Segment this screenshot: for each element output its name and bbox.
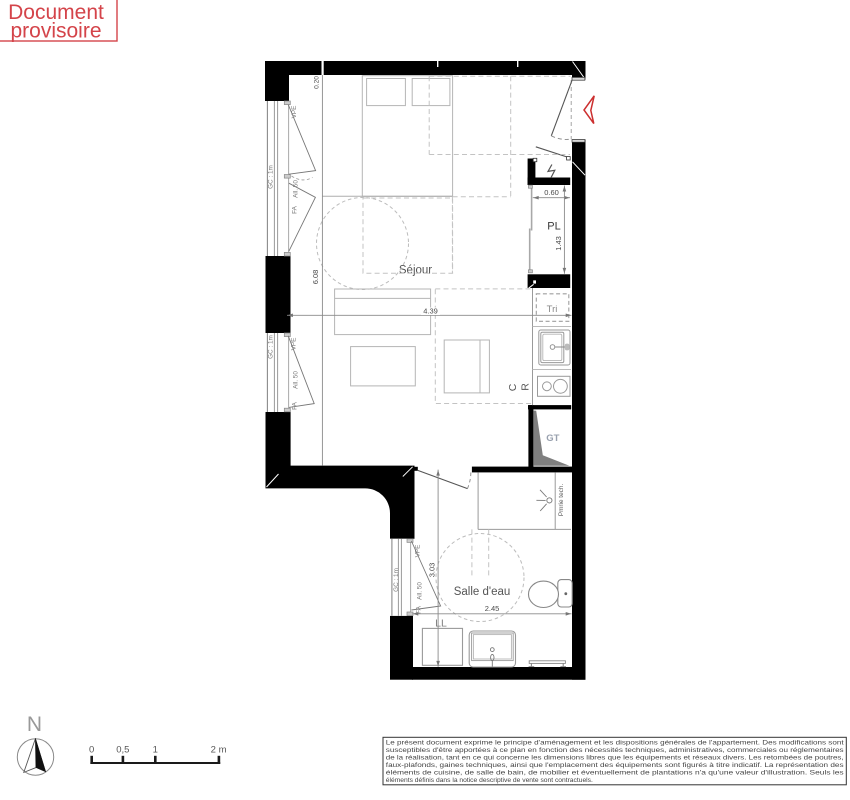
svg-text:3.03: 3.03 <box>427 563 436 578</box>
svg-text:Le présent document exprime le: Le présent document exprime le principe … <box>386 739 844 746</box>
svg-text:éléments définis dans la notic: éléments définis dans la notice descript… <box>386 777 593 784</box>
svg-text:2 m: 2 m <box>211 745 227 756</box>
svg-text:N: N <box>27 713 42 736</box>
svg-text:VPE: VPE <box>415 545 422 558</box>
svg-text:GC : 1m: GC : 1m <box>393 568 400 592</box>
svg-text:All. 50: All. 50 <box>417 582 424 600</box>
svg-text:4.39: 4.39 <box>423 307 438 316</box>
svg-text:FA: FA <box>292 205 299 214</box>
svg-text:faux-plafonds, gaines techniqu: faux-plafonds, gaines techniques, ainsi … <box>386 762 845 769</box>
svg-text:LL: LL <box>435 618 447 630</box>
svg-text:FA: FA <box>292 401 299 410</box>
svg-text:0,5: 0,5 <box>116 745 129 756</box>
svg-text:éléments de cuisine, de salle: éléments de cuisine, de salle de bain, d… <box>386 769 845 776</box>
svg-text:PL: PL <box>547 221 560 233</box>
svg-text:GC : 1m: GC : 1m <box>268 165 275 189</box>
svg-text:C: C <box>507 383 519 391</box>
svg-text:1.43: 1.43 <box>554 236 563 251</box>
svg-text:VPE: VPE <box>291 338 298 351</box>
svg-text:VPE: VPE <box>291 106 298 119</box>
svg-text:Tri: Tri <box>547 304 558 315</box>
svg-text:All. 50: All. 50 <box>293 180 300 198</box>
svg-text:GC : 1m: GC : 1m <box>268 335 275 359</box>
svg-text:provisoire: provisoire <box>10 19 101 42</box>
svg-text:de la réalisation, tant en ce: de la réalisation, tant en ce qui concer… <box>386 754 844 761</box>
svg-text:0.60: 0.60 <box>544 188 559 197</box>
svg-text:0.20: 0.20 <box>313 76 320 89</box>
svg-text:6.08: 6.08 <box>311 270 320 285</box>
svg-text:0: 0 <box>89 745 94 756</box>
svg-text:2.45: 2.45 <box>485 604 500 613</box>
svg-text:Pmrie tech.: Pmrie tech. <box>558 484 565 517</box>
svg-text:1: 1 <box>153 745 158 756</box>
svg-text:R: R <box>520 383 532 391</box>
svg-text:GT: GT <box>546 433 559 444</box>
svg-text:Séjour: Séjour <box>399 265 432 277</box>
svg-text:All. 50: All. 50 <box>293 371 300 389</box>
svg-text:Salle d'eau: Salle d'eau <box>454 586 511 598</box>
svg-text:susceptibles d'être apportées: susceptibles d'être apportées à ce plan … <box>386 747 845 754</box>
